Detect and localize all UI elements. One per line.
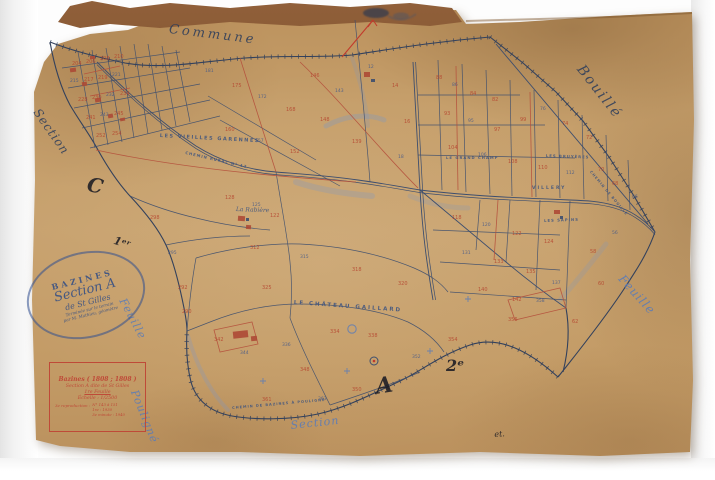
red-survey-lines <box>84 58 566 352</box>
scanned-cadastral-map-page: { "colors": { "paper": "#c49e6a", "ink_b… <box>0 0 715 480</box>
cartouche-sheet: 1re Feuille <box>84 390 110 395</box>
parcel-lines <box>62 20 630 405</box>
cartouche-repro-line-3: 3e minute : 1940 <box>92 413 125 418</box>
cartouche-section: Section A dite de St Gilles <box>66 384 130 389</box>
cartouche-repro-lines: N° 143 à 151 1re : 1930 3e minute : 1940 <box>92 403 125 417</box>
north-mark-smudge <box>363 8 416 20</box>
cartouche-repro-row: 3e reproduction : N° 143 à 151 1re : 193… <box>52 403 143 417</box>
paper-fold-line <box>466 13 692 21</box>
cartouche-title: Bazines ( 1808 ; 1808 ) <box>59 376 137 383</box>
cartouche-repro-label: 3e reproduction : <box>52 403 92 408</box>
roads <box>97 44 655 308</box>
cartouche-scale: Échelle : 1/2500 <box>78 396 118 401</box>
red-cartouche-box: Bazines ( 1808 ; 1808 ) Section A dite d… <box>49 362 146 432</box>
